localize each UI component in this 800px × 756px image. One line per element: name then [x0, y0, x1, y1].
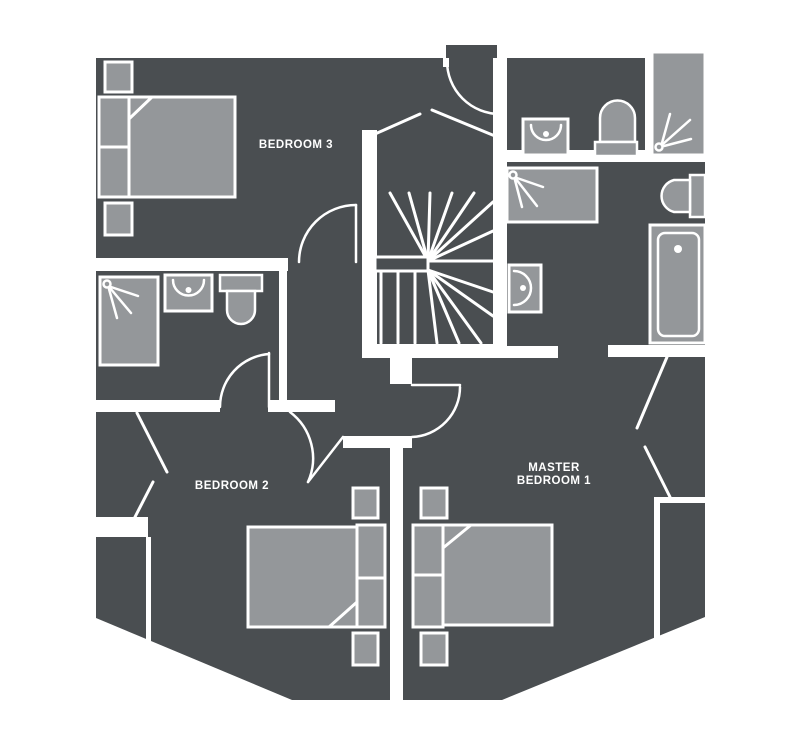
wall — [493, 346, 558, 358]
shower — [507, 168, 597, 222]
wall — [95, 45, 446, 58]
wall — [279, 258, 287, 404]
master-bedroom-label-line1: MASTER — [528, 462, 580, 474]
wall-stairwell-left — [362, 130, 377, 358]
corner-shower — [652, 52, 705, 155]
wall — [608, 345, 705, 357]
bed-headboard — [413, 525, 443, 575]
nightstand-icon — [421, 488, 447, 518]
bed-headboard — [357, 578, 385, 627]
double-bed-icon — [443, 525, 552, 625]
wash-basin-icon — [509, 265, 541, 312]
wall — [95, 258, 288, 271]
wash-basin-icon — [165, 275, 212, 311]
nightstand-icon — [105, 62, 132, 92]
bed-headboard — [99, 147, 129, 197]
window-opening — [90, 517, 148, 537]
stair-tread — [428, 193, 430, 261]
nightstand-icon — [105, 203, 132, 235]
bed-headboard — [99, 97, 129, 147]
bed-headboard — [413, 575, 443, 627]
bedroom3-label: BEDROOM 3 — [259, 139, 333, 151]
floor-plan-page: BEDROOM 3 BEDROOM 2 MASTER BEDROOM 1 — [0, 0, 800, 756]
double-bed-icon — [129, 97, 235, 197]
stair-handrail — [375, 257, 428, 271]
wall — [95, 400, 220, 412]
bathtub-icon — [650, 225, 705, 343]
wall-between-bedrooms — [390, 441, 403, 702]
master-bedroom-label-line2: BEDROOM 1 — [517, 475, 591, 487]
double-bed-icon — [248, 527, 357, 627]
toilet-icon — [662, 175, 705, 217]
wall-recess-left — [654, 497, 660, 643]
nightstand-icon — [353, 488, 378, 518]
nightstand-icon — [353, 633, 378, 665]
wall — [268, 400, 335, 412]
bed-headboard — [357, 525, 385, 578]
bedroom2-label: BEDROOM 2 — [195, 480, 269, 492]
toilet-icon — [595, 101, 637, 157]
nightstand-icon — [421, 633, 447, 665]
wall-closet — [146, 537, 151, 641]
wall-recess-top — [654, 497, 705, 503]
wash-basin-icon — [523, 119, 568, 155]
floor-plan-drawing: BEDROOM 3 BEDROOM 2 MASTER BEDROOM 1 — [0, 0, 800, 756]
wall-stairwell-right — [493, 58, 507, 358]
wall-stairwell-bottom — [362, 344, 497, 358]
wall — [390, 355, 412, 384]
